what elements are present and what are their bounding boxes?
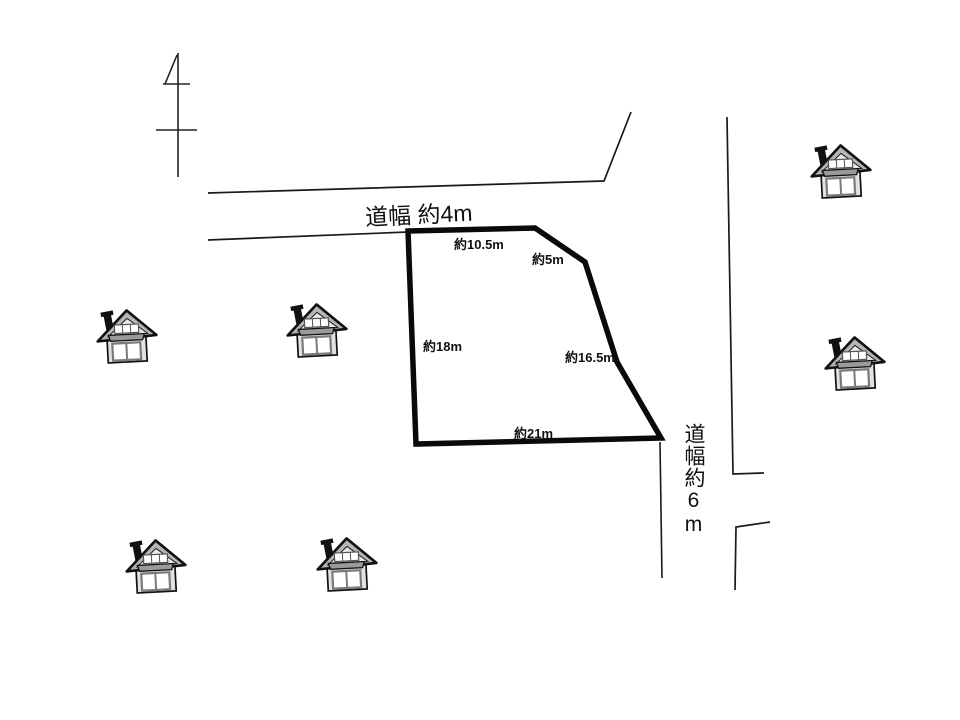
plot-dimension-top: 約10.5m [454, 234, 504, 253]
house-icon [824, 335, 886, 390]
site-plan-canvas [0, 0, 960, 720]
plot-dimension-bottom: 約21m [514, 423, 553, 442]
right-road-left-edge [727, 117, 764, 474]
site-plan-diagram: 道幅 約4m 道幅約6m 約10.5m 約5m 約18m 約16.5m 約21m [0, 0, 960, 720]
right-road-width-label: 道幅約6m [683, 423, 704, 537]
house-icon [286, 302, 348, 357]
plot-dimension-top-right: 約5m [532, 249, 564, 268]
plot-dimension-right: 約16.5m [565, 347, 615, 366]
plot-boundary-extension-line [660, 442, 662, 578]
house-icon [96, 308, 158, 363]
house-icon [125, 538, 187, 593]
utility-pole-icon [156, 53, 197, 177]
plot-dimension-left: 約18m [423, 336, 462, 355]
top-road-width-label: 道幅 約4m [364, 194, 473, 233]
top-road-upper-edge [208, 112, 631, 193]
top-road-lower-edge [208, 232, 408, 240]
house-icon [316, 536, 378, 591]
right-road-lower-edge [735, 522, 770, 590]
house-icon [810, 143, 872, 198]
